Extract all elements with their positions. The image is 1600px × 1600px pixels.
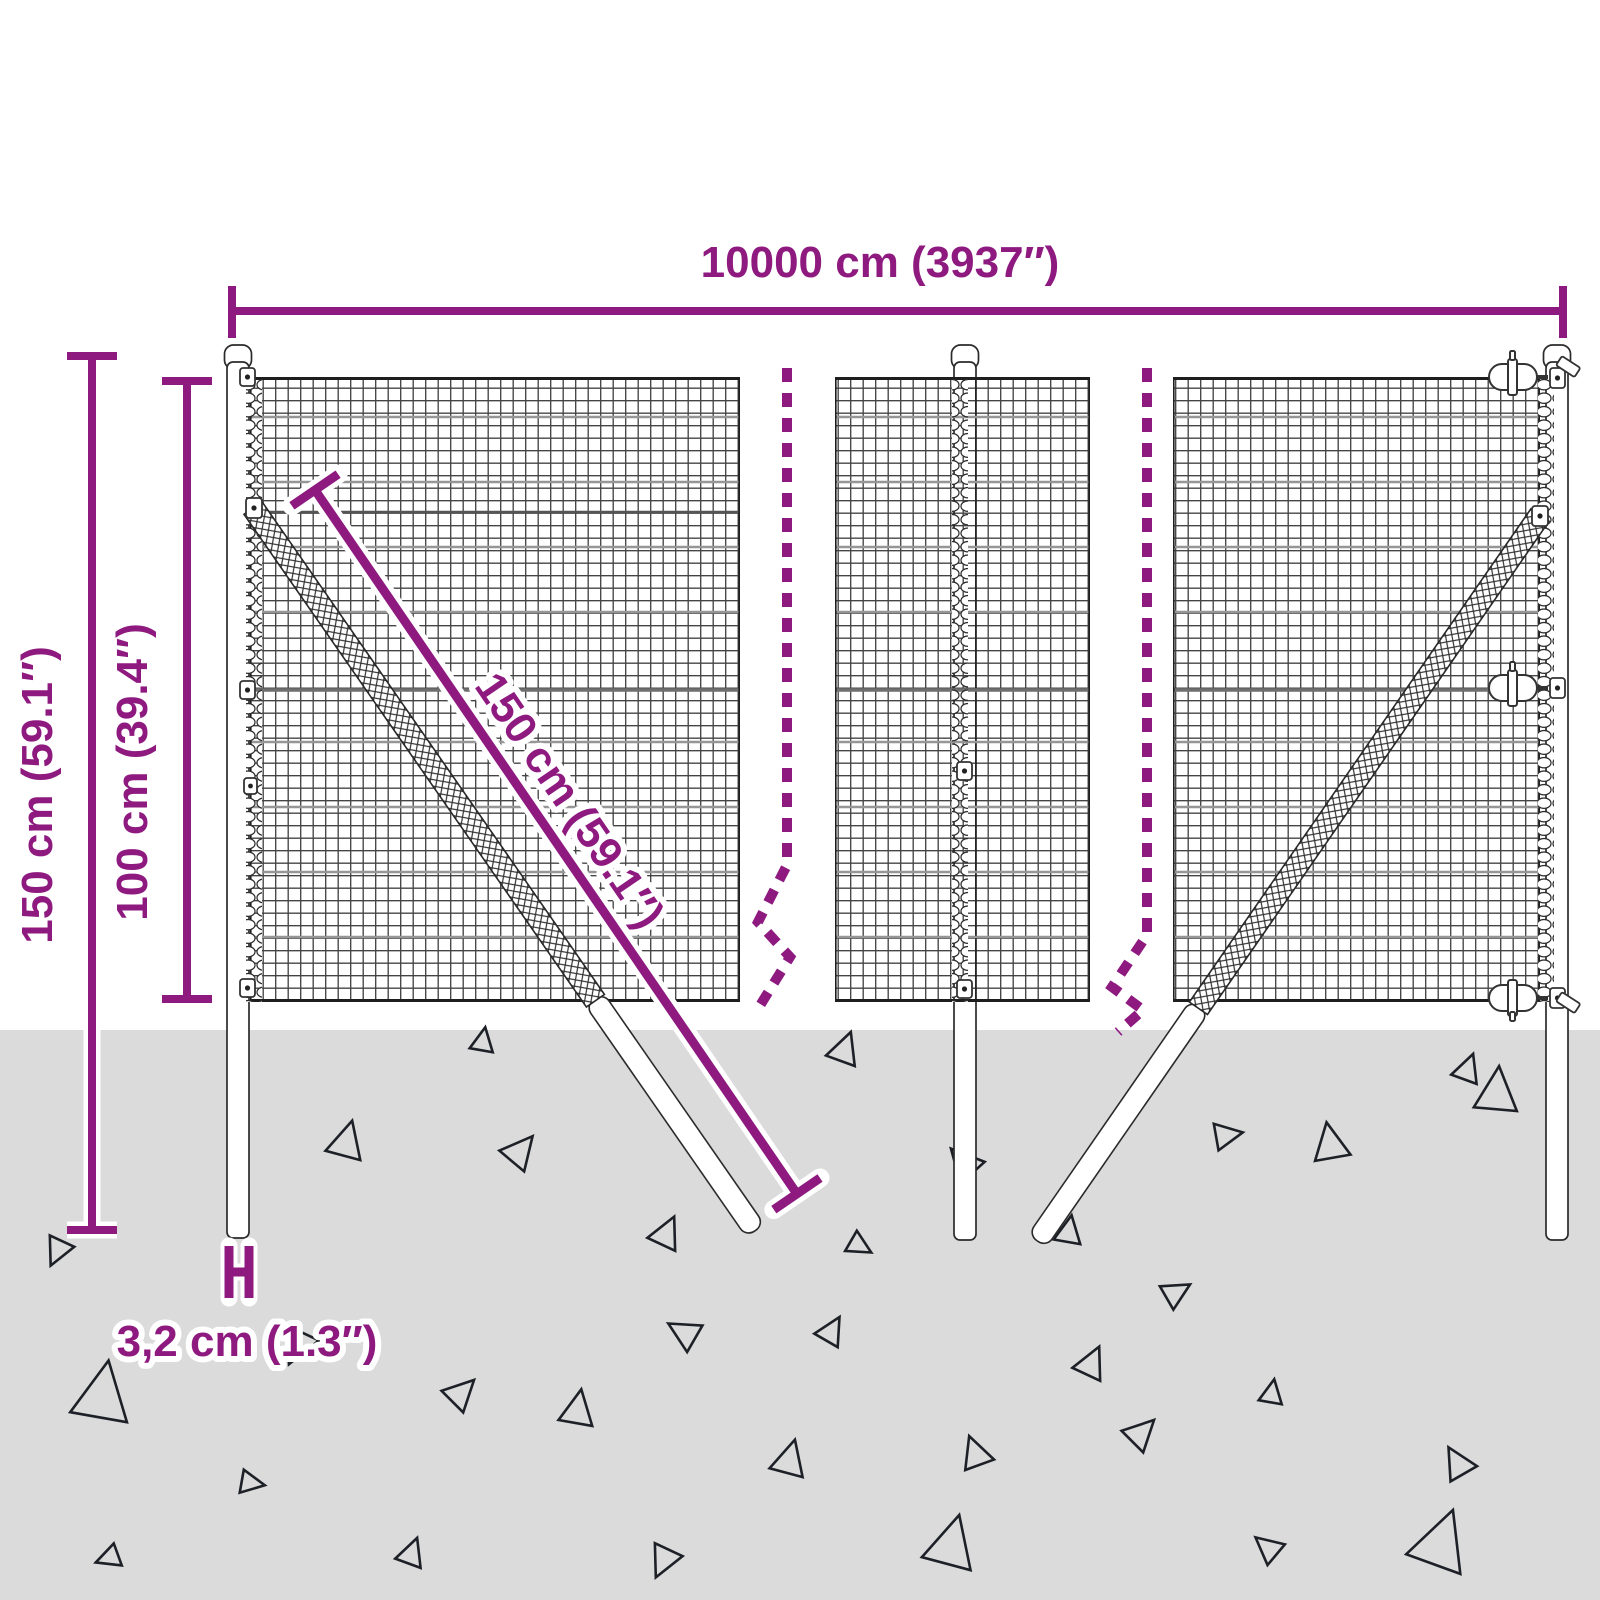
coil-middle-post: [952, 378, 968, 1002]
fence-dimension-diagram: 10000 cm (3937″) 150 cm (59.1″) 100 cm (…: [0, 0, 1600, 1600]
dimension-mesh-height-label: 100 cm (39.4″): [108, 623, 157, 920]
dimension-post-width-label: 3,2 cm (1.3″): [117, 1317, 378, 1366]
dimension-total-height-label: 150 cm (59.1″): [13, 646, 62, 943]
dimension-total-width-label: 10000 cm (3937″): [701, 238, 1060, 287]
mesh-panel-right: [1173, 377, 1540, 1002]
